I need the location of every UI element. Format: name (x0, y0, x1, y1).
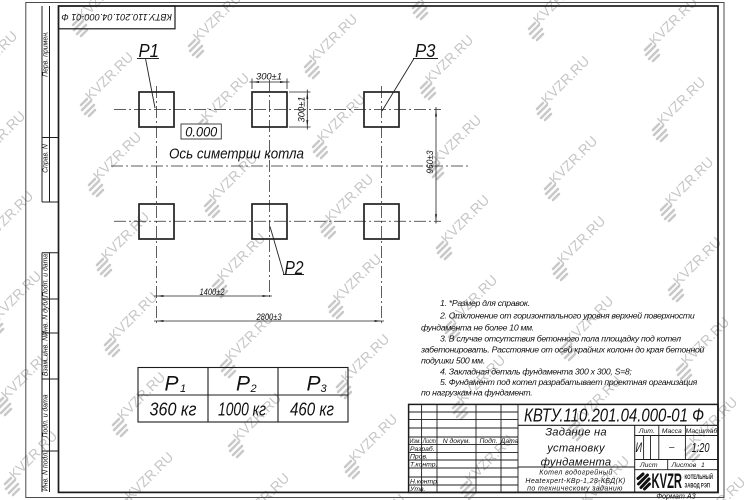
svg-text:Heatexpert-КВр-1,28-КБД(К): Heatexpert-КВр-1,28-КБД(К) (525, 478, 625, 485)
svg-text:Утв.: Утв. (409, 486, 426, 493)
svg-text:1. *Размер для справок.: 1. *Размер для справок. (440, 298, 530, 308)
svg-text:Р: Р (307, 373, 321, 396)
svg-text:Котел водогрейный: Котел водогрейный (539, 468, 612, 476)
svg-text:по техническому заданию: по техническому заданию (527, 485, 623, 493)
svg-text:по нагрузкам на фундамент.: по нагрузкам на фундамент. (421, 388, 532, 398)
svg-text:фундамента: фундамента (541, 456, 612, 468)
svg-text:Изм.: Изм. (410, 438, 421, 445)
svg-text:КВТУ.110.201.04.000-01 Ф: КВТУ.110.201.04.000-01 Ф (61, 12, 172, 22)
svg-text:Т.контр.: Т.контр. (410, 462, 438, 469)
svg-text:1: 1 (701, 462, 705, 469)
svg-text:1000 кг: 1000 кг (218, 399, 266, 420)
svg-text:2. Отклонение от горизонтально: 2. Отклонение от горизонтального уровня … (439, 311, 695, 321)
svg-text:300±1: 300±1 (256, 72, 282, 82)
svg-text:Р: Р (165, 373, 179, 396)
svg-text:Н.контр.: Н.контр. (410, 479, 439, 486)
svg-text:KVZR: KVZR (652, 469, 683, 493)
svg-text:1:20: 1:20 (692, 441, 710, 455)
svg-text:Справ. N: Справ. N (43, 144, 50, 173)
svg-text:И: И (635, 439, 642, 455)
svg-text:Дата: Дата (500, 438, 519, 445)
svg-text:фундамента не более 10 мм.: фундамента не более 10 мм. (421, 323, 534, 333)
svg-text:Лист: Лист (422, 438, 436, 445)
svg-text:Масса: Масса (662, 428, 682, 435)
svg-text:3. В случае отсутствия бетонно: 3. В случае отсутствия бетонного пола пл… (440, 334, 681, 344)
svg-text:Р1: Р1 (139, 41, 160, 61)
svg-text:Р3: Р3 (415, 41, 436, 61)
svg-text:Перв. примен.: Перв. примен. (43, 31, 50, 77)
svg-text:4. Закладная деталь фундамента: 4. Закладная деталь фундамента 300 x 300… (440, 367, 632, 377)
svg-text:КВТУ.110.201.04.000-01 Ф: КВТУ.110.201.04.000-01 Ф (524, 406, 704, 426)
svg-text:Пров.: Пров. (410, 454, 428, 461)
svg-text:–: – (668, 442, 675, 453)
svg-text:1: 1 (180, 383, 186, 395)
svg-text:2800±3: 2800±3 (256, 312, 282, 322)
svg-text:Разраб.: Разраб. (410, 445, 435, 453)
svg-text:Подп. и дата: Подп. и дата (42, 394, 50, 437)
svg-text:Р: Р (236, 373, 250, 396)
svg-text:Формат А3: Формат А3 (656, 491, 695, 500)
svg-text:Ось симетрии котла: Ось симетрии котла (169, 147, 304, 163)
svg-text:Р2: Р2 (285, 258, 304, 278)
svg-text:Задание на: Задание на (545, 427, 607, 439)
svg-text:0.000: 0.000 (185, 124, 217, 139)
svg-text:N докум.: N докум. (443, 437, 471, 445)
svg-text:КОТЕЛЬНЫЙ: КОТЕЛЬНЫЙ (685, 472, 714, 481)
svg-text:1400±2: 1400±2 (200, 287, 225, 297)
svg-text:5. Фундамент под котел разраба: 5. Фундамент под котел разрабатывает про… (440, 377, 698, 387)
svg-text:Взам. инв. N: Взам. инв. N (43, 336, 50, 376)
svg-text:ЗАВОД РЭП: ЗАВОД РЭП (685, 482, 711, 489)
svg-text:460 кг: 460 кг (290, 399, 334, 420)
svg-text:Инв. N дубл.: Инв. N дубл. (42, 296, 50, 336)
svg-text:300±1: 300±1 (296, 97, 306, 123)
svg-text:Лит.: Лит. (638, 428, 655, 435)
svg-text:960±3: 960±3 (425, 151, 435, 174)
svg-text:подушки 500 мм.: подушки 500 мм. (421, 356, 485, 366)
svg-text:Подп. и дата: Подп. и дата (42, 254, 50, 297)
svg-text:Масштаб: Масштаб (686, 427, 719, 435)
svg-text:Инв. N подл.: Инв. N подл. (42, 451, 50, 491)
svg-text:Подп.: Подп. (479, 437, 497, 445)
svg-text:2: 2 (250, 383, 257, 395)
svg-text:забетонировать. Расстояние от: забетонировать. Расстояние от осей крайн… (420, 345, 705, 355)
svg-text:3: 3 (321, 383, 328, 395)
svg-text:360 кг: 360 кг (150, 399, 197, 420)
svg-text:установку: установку (546, 442, 606, 454)
